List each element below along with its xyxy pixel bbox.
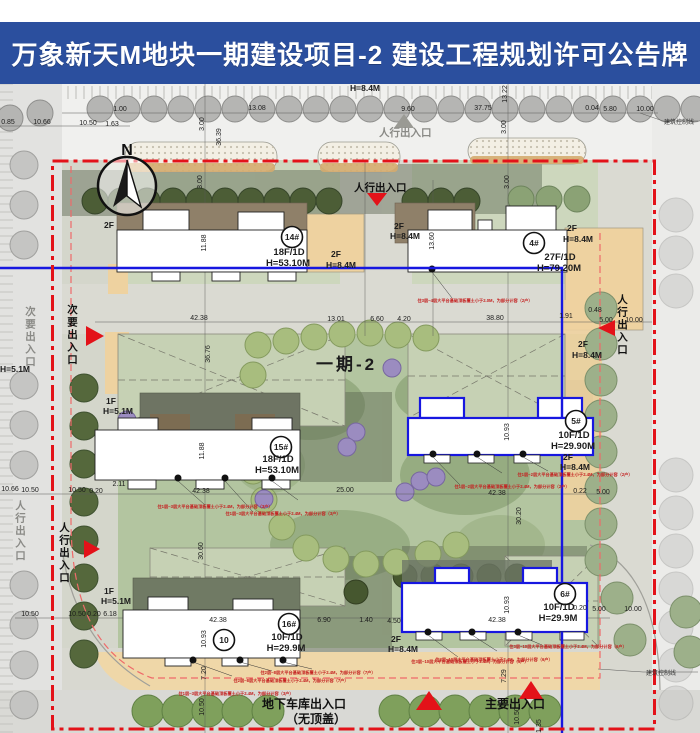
tree-icon xyxy=(438,96,464,122)
building-floors: 10F/1D xyxy=(543,602,574,613)
dimension-label: 3.00 xyxy=(199,117,206,131)
building-height: H=53.10M xyxy=(255,465,299,476)
tree-icon xyxy=(674,636,700,668)
tree-icon xyxy=(585,508,617,540)
dimension-label: 1.00 xyxy=(113,106,127,113)
tree-icon xyxy=(564,186,590,212)
dimension-label: 0.20 xyxy=(87,611,101,618)
tree-icon xyxy=(301,324,327,350)
unit-label: 2F xyxy=(331,249,341,259)
unit-label: 2F xyxy=(567,223,577,233)
dimension-label: 0.20 xyxy=(89,488,103,495)
tree-icon xyxy=(70,640,98,668)
control-line-label: 建筑控制线 xyxy=(664,118,694,126)
dimension-label: 10.66 xyxy=(1,486,19,493)
tree-icon xyxy=(162,695,194,727)
dimension-label: 5.00 xyxy=(599,317,613,324)
tree-icon xyxy=(411,472,429,490)
tree-icon xyxy=(10,451,38,479)
tree-icon xyxy=(269,514,295,540)
entrance-label: 地下车库出入口 xyxy=(262,696,346,711)
tree-icon xyxy=(659,198,693,232)
building-height: H=29.9M xyxy=(539,613,578,624)
entrance-label: 次要出入口 xyxy=(66,303,78,366)
dimension-label: 5.00 xyxy=(592,606,606,613)
red-note: 住1层~3层大平台基础顶板覆土小于2.4M，为部分计容（3户） xyxy=(178,690,293,697)
tree-icon xyxy=(222,96,248,122)
tree-icon xyxy=(413,325,439,351)
dimension-label: 25.00 xyxy=(336,487,354,494)
unit-label: 1F xyxy=(106,396,116,406)
dimension-label: 13.01 xyxy=(327,316,345,323)
tree-icon xyxy=(316,188,342,214)
entrance-label: 人行出入口 xyxy=(14,499,26,562)
tree-icon xyxy=(344,580,368,604)
dimension-label: 10.93 xyxy=(504,423,511,441)
dimension-label: 42.38 xyxy=(209,617,227,624)
unit-label: H=8.4M xyxy=(350,84,380,93)
tree-icon xyxy=(385,322,411,348)
tree-icon xyxy=(303,96,329,122)
building-number: 5# xyxy=(571,416,581,426)
tree-icon xyxy=(132,695,164,727)
tree-icon xyxy=(10,191,38,219)
dimension-label: 0.48 xyxy=(588,307,602,314)
title-banner: 万象新天M地块一期建设项目-2 建设工程规划许可公告牌 xyxy=(0,22,700,84)
building-14 xyxy=(117,203,307,281)
entrance-label: 人行出入口 xyxy=(379,126,432,139)
tree-icon xyxy=(10,651,38,679)
building-number: 14# xyxy=(285,232,299,242)
unit-label: H=5.1M xyxy=(101,596,131,606)
dimension-label: 0.85 xyxy=(1,119,15,126)
tree-icon xyxy=(10,371,38,399)
dimension-label: 36.39 xyxy=(216,128,223,146)
tree-icon xyxy=(585,364,617,396)
building-floors: 27F/1D xyxy=(544,252,575,263)
dimension-label: 3.00 xyxy=(501,120,508,134)
dimension-label: 10.66 xyxy=(33,119,51,126)
tree-icon xyxy=(357,320,383,346)
permit-board: 万象新天M地块一期建设项目-2 建设工程规划许可公告牌 xyxy=(0,0,700,733)
unit-label: H=8.4M xyxy=(326,260,356,270)
tree-icon xyxy=(192,695,224,727)
building-floors: 18F/1D xyxy=(262,454,293,465)
tree-icon xyxy=(338,438,356,456)
building-height: H=29.9M xyxy=(267,643,306,654)
tree-icon xyxy=(379,695,411,727)
unit-label: 2F xyxy=(578,339,588,349)
dimension-label: 3.00 xyxy=(504,175,511,189)
dimension-label: 13.22 xyxy=(502,85,509,103)
tree-icon xyxy=(323,546,349,572)
building-number: 10 xyxy=(219,635,229,645)
dimension-label: 10.50 xyxy=(68,487,86,494)
dimension-label: 6.18 xyxy=(103,611,117,618)
dimension-label: 7.20 xyxy=(201,666,208,680)
dimension-label: 0.20 xyxy=(573,605,587,612)
tree-icon xyxy=(240,362,266,388)
dimension-label: 30.60 xyxy=(198,542,205,560)
dimension-label: 38.80 xyxy=(486,315,504,322)
tree-icon xyxy=(276,96,302,122)
unit-label: H=8.4M xyxy=(390,231,420,241)
building-number: 16# xyxy=(282,619,296,629)
tree-icon xyxy=(10,411,38,439)
tree-icon xyxy=(168,96,194,122)
red-note: 住1层~2层大平台基础顶板覆土小于2.4M，为部分计容（2户） xyxy=(454,483,569,490)
dimension-label: 6.60 xyxy=(370,316,384,323)
tree-icon xyxy=(546,96,572,122)
tree-icon xyxy=(70,450,98,478)
dimension-label: 10.50 xyxy=(21,611,39,618)
dimension-label: 42.38 xyxy=(192,488,210,495)
tree-icon xyxy=(70,412,98,440)
site-plan: 0.8510.6610.501.631.0013.0836.393.003.00… xyxy=(0,84,700,733)
tree-icon xyxy=(427,468,445,486)
tree-icon xyxy=(10,571,38,599)
red-note: 住3层~10层大平台基础顶板覆土小于2.4M，为部分计容（6户） xyxy=(435,656,552,663)
tree-icon xyxy=(293,535,319,561)
page-title: 万象新天M地块一期建设项目-2 建设工程规划许可公告牌 xyxy=(11,35,688,72)
dimension-label: 2.11 xyxy=(112,481,125,488)
building-number: 15# xyxy=(274,442,288,452)
unit-label: 1F xyxy=(104,586,114,596)
entrance-label: 次要出入口 xyxy=(24,305,36,368)
red-note: 住1层~3层大平台基础顶板覆土小于2.4M，为部分计容（3户） xyxy=(157,503,272,510)
dimension-label: 9.60 xyxy=(401,106,415,113)
tree-icon xyxy=(329,321,355,347)
dimension-label: 37.75 xyxy=(474,105,492,112)
tree-icon xyxy=(411,96,437,122)
tree-icon xyxy=(0,105,23,131)
building-height: H=79.20M xyxy=(537,263,581,274)
unit-label: 2F xyxy=(394,221,404,231)
dimension-label: 10.50 xyxy=(199,698,206,716)
unit-label: 2F xyxy=(104,220,114,230)
dimension-label: 5.00 xyxy=(596,489,610,496)
unit-label: H=5.1M xyxy=(103,406,133,416)
dimension-label: 10.00 xyxy=(636,106,654,113)
building-floors: 10F/1D xyxy=(271,632,302,643)
tree-icon xyxy=(670,596,700,628)
red-note: 住2层~8层大平台基础顶板覆土小于2.4M，为部分计容（7户） xyxy=(233,677,348,684)
tree-icon xyxy=(585,544,617,576)
control-line-label: 建筑控制线 xyxy=(646,669,676,677)
tree-icon xyxy=(659,496,693,530)
dimension-label: 5.80 xyxy=(603,106,617,113)
unit-label: H=8.4M xyxy=(560,462,590,472)
dimension-label: 10.00 xyxy=(624,606,642,613)
tree-icon xyxy=(383,359,401,377)
dimension-label: 7.29 xyxy=(501,669,508,683)
red-note: 住3层~10层大平台基础顶板覆土小于2.4M，为部分计容（6户） xyxy=(509,643,626,650)
entrance-label: 人行出入口 xyxy=(354,181,407,194)
tree-icon xyxy=(357,96,383,122)
building-height: H=53.10M xyxy=(266,258,310,269)
phase-label: 一期-2 xyxy=(316,355,377,374)
tree-icon xyxy=(439,695,471,727)
unit-label: 2F xyxy=(563,452,573,462)
dimension-label: 6.90 xyxy=(317,617,331,624)
tree-icon xyxy=(141,96,167,122)
tree-icon xyxy=(659,458,693,492)
building-number: 6# xyxy=(560,589,570,599)
tree-icon xyxy=(10,151,38,179)
dimension-label: 13.60 xyxy=(429,232,436,250)
building-floors: 18F/1D xyxy=(273,247,304,258)
entrance-label: 人行出入口 xyxy=(58,521,70,584)
dimension-label: 0.22 xyxy=(573,488,587,495)
dimension-label: 10.93 xyxy=(504,596,511,614)
tree-icon xyxy=(245,332,271,358)
dimension-label: 10.50 xyxy=(68,611,86,618)
tree-icon xyxy=(10,691,38,719)
dimension-label: 42.38 xyxy=(488,617,506,624)
tree-icon xyxy=(222,695,254,727)
tree-icon xyxy=(659,236,693,270)
red-note: 住3层~4层大平台基础顶板覆土小于2.0M，为部分计容（2户） xyxy=(417,297,532,304)
tree-icon xyxy=(273,328,299,354)
tree-icon xyxy=(353,551,379,577)
dimension-label: 3.00 xyxy=(197,175,204,189)
dimension-label: 0.04 xyxy=(585,105,599,112)
dimension-label: 13.08 xyxy=(248,105,266,112)
dimension-label: 42.38 xyxy=(190,315,208,322)
dimension-label: 1.35 xyxy=(536,719,543,733)
tree-icon xyxy=(659,534,693,568)
dimension-label: 42.38 xyxy=(488,490,506,497)
tree-icon xyxy=(614,624,646,656)
building-height: H=29.90M xyxy=(551,441,595,452)
red-note: 住2层~8层大平台基础顶板覆土小于2.4M，为部分计容（7户） xyxy=(260,669,375,676)
dimension-label: 10.93 xyxy=(201,630,208,648)
north-label: N xyxy=(121,142,133,159)
dimension-label: 4.50 xyxy=(387,618,401,625)
dimension-label: 30.20 xyxy=(516,507,523,525)
entrance-label: （无顶盖） xyxy=(286,711,346,726)
dimension-label: 10.50 xyxy=(79,120,97,127)
unit-label: H=8.4M xyxy=(563,234,593,244)
tree-icon xyxy=(519,96,545,122)
dimension-label: 1.91 xyxy=(559,313,573,320)
tree-icon xyxy=(443,532,469,558)
red-note: 住1层~3层大平台基础顶板覆土小于2.4M，为部分计容（3户） xyxy=(225,510,340,517)
unit-label: 2F xyxy=(391,634,401,644)
dimension-label: 36.76 xyxy=(205,345,212,363)
dimension-label: 4.20 xyxy=(397,316,411,323)
tree-icon xyxy=(330,96,356,122)
tree-icon xyxy=(396,483,414,501)
tree-icon xyxy=(10,231,38,259)
dimension-label: 10.50 xyxy=(21,487,39,494)
unit-label: H=8.4M xyxy=(388,644,418,654)
building-floors: 10F/1D xyxy=(558,430,589,441)
tree-icon xyxy=(87,96,113,122)
entrance-label: 主要出入口 xyxy=(485,696,545,711)
red-note: 住1层~2层大平台基础顶板覆土小于2.4M，为部分计容（2户） xyxy=(517,471,632,478)
entrance-label: 人行出入口 xyxy=(616,293,628,356)
dimension-label: 1.40 xyxy=(359,617,373,624)
building-number: 4# xyxy=(529,238,539,248)
tree-icon xyxy=(659,274,693,308)
tree-icon xyxy=(70,374,98,402)
dimension-label: 1.63 xyxy=(105,121,119,128)
unit-label: H=8.4M xyxy=(572,350,602,360)
dimension-label: 11.88 xyxy=(199,442,206,459)
tree-icon xyxy=(659,686,693,720)
dimension-label: 11.88 xyxy=(201,234,208,251)
tree-icon xyxy=(654,96,680,122)
